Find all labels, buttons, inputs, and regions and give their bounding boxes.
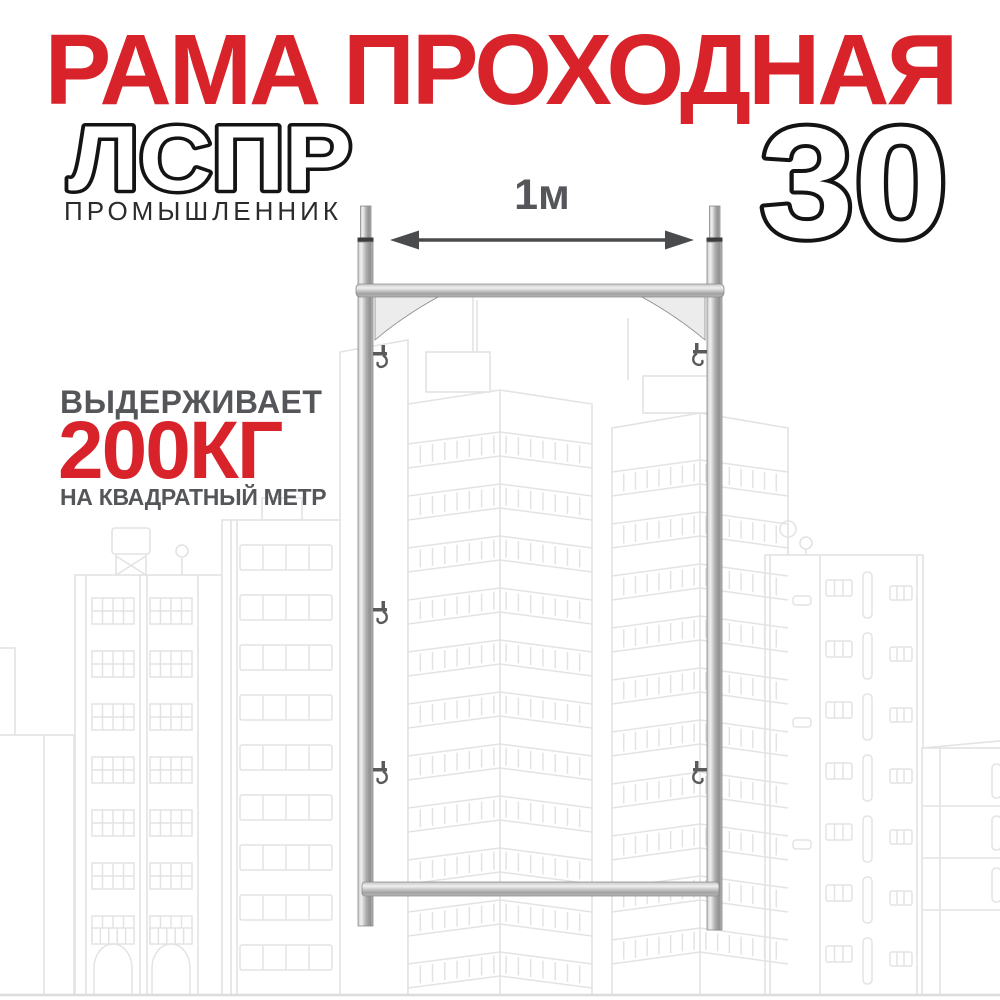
frame-left-spigot [361, 206, 372, 242]
frame-left-spigot-collar [358, 238, 374, 243]
product-line-badge: ЛСПР [60, 114, 360, 209]
frame-right-spigot [710, 206, 721, 242]
size-number-badge: 30 [748, 110, 960, 260]
frame-right-post [707, 242, 722, 930]
product-banner: РАМА ПРОХОДНАЯ ЛСПР ПРОМЫШЛЕННИК 30 1м В… [0, 0, 1000, 1000]
frame-hook [373, 345, 387, 367]
frame-bottom-bar [362, 882, 719, 896]
dimension-label: 1м [390, 174, 694, 217]
frame-left-post [358, 242, 373, 926]
frame-hook [693, 761, 707, 783]
frame-hook [373, 761, 387, 783]
frame-hook [373, 601, 387, 623]
frame-right-brace [642, 297, 705, 340]
frame-top-bar [356, 284, 724, 297]
brand-label: ПРОМЫШЛЕННИК [64, 198, 342, 224]
dimension-arrow-icon [388, 224, 696, 256]
page-title: РАМА ПРОХОДНАЯ [0, 20, 1000, 120]
frame-lock-hooks [373, 343, 707, 783]
frame-right-spigot-collar [707, 238, 723, 243]
frame-left-brace [375, 297, 438, 340]
frame-hook [693, 343, 707, 365]
capacity-unit: НА КВАДРАТНЫЙ МЕТР [60, 486, 326, 509]
capacity-value: 200КГ [58, 410, 281, 492]
product-line-text: ЛСПР [68, 114, 352, 209]
size-number-text: 30 [760, 110, 948, 260]
